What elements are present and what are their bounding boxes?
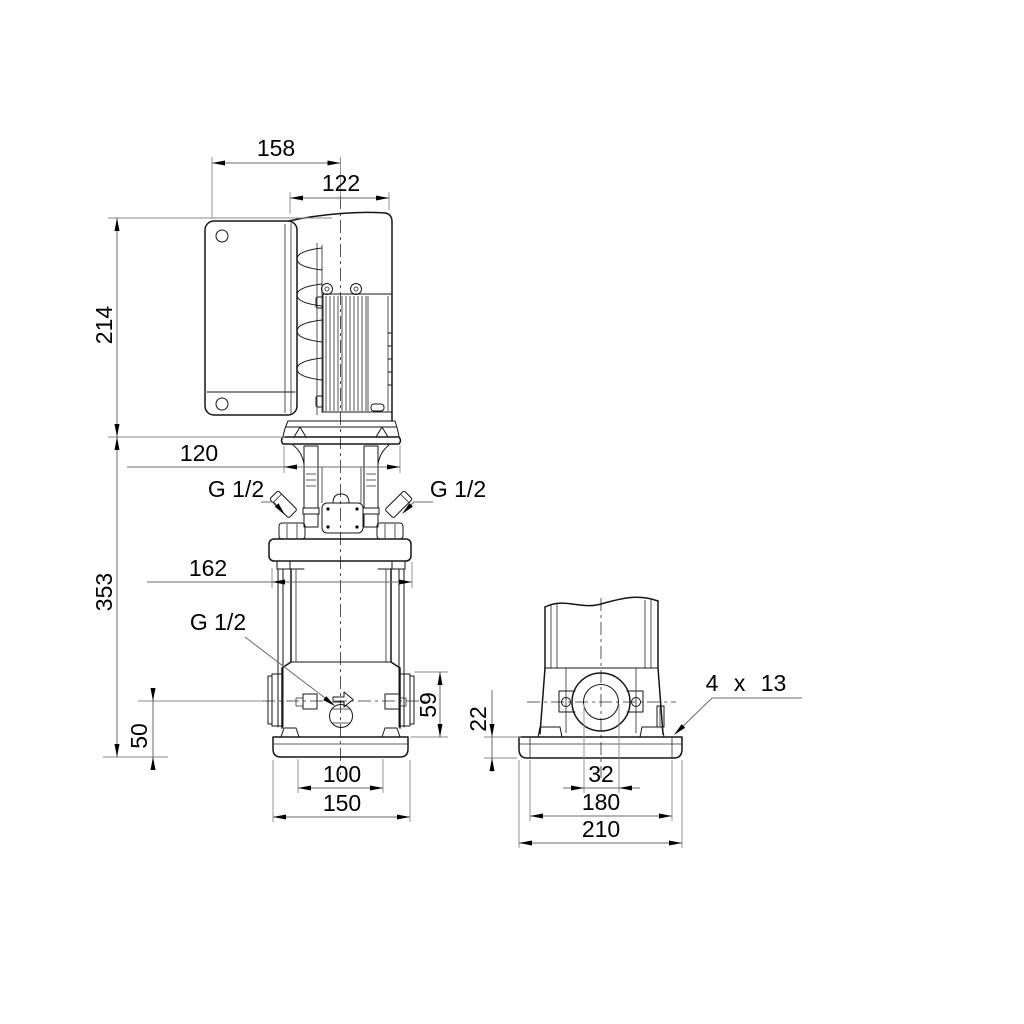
oval-flange: [269, 539, 411, 561]
label-g12-top-left: G 1/2: [208, 476, 264, 502]
fin-panel-edges: [368, 296, 388, 411]
staybolt-nut-left: [303, 508, 319, 514]
base-shoulders: [282, 662, 400, 728]
staybolt-right: [364, 446, 378, 527]
dimensions: 158 122 214 353: [91, 135, 802, 848]
converter-hole-bottom: [216, 398, 228, 410]
fin-end-ticks: [388, 333, 391, 385]
side-sleeve-walls: [545, 601, 658, 668]
grommet-1: [297, 248, 322, 270]
dim-label-100: 100: [323, 761, 361, 787]
sleeve-walls: [291, 569, 391, 662]
side-base-flare: [540, 668, 663, 734]
dim-coupling-width: 120: [127, 440, 400, 473]
gauge-plug-right: [385, 491, 413, 519]
screw-right: [351, 284, 362, 295]
shaft-dome: [333, 494, 349, 503]
dim-label-158: 158: [257, 135, 295, 161]
guard-screw-3: [326, 525, 329, 528]
technical-drawing: 158 122 214 353: [0, 0, 1024, 1024]
label-4x13: 4 x 13: [706, 670, 787, 696]
dim-port-height: 59: [411, 672, 448, 737]
port-left: [268, 674, 282, 726]
dim-label-214: 214: [91, 306, 117, 345]
port-right: [400, 674, 414, 726]
label-drain-port: G 1/2: [190, 609, 335, 706]
boss-left-stem: [296, 698, 303, 706]
break-line: [545, 597, 658, 607]
screw-left: [322, 284, 333, 295]
label-gauge-port-right: G 1/2: [402, 476, 486, 514]
motor: [282, 212, 401, 444]
flange-ring: [282, 437, 401, 444]
dim-motor-diameter: 122: [290, 170, 389, 214]
boss-right: [385, 694, 399, 709]
dim-base-hole-spacing: 100: [298, 759, 383, 793]
drain-plug-flats: [332, 709, 350, 723]
front-view-pump: [205, 157, 414, 775]
dim-pump-width: 162: [147, 555, 412, 588]
boss-left: [303, 694, 317, 709]
baseplate-side: [519, 737, 682, 758]
dim-port-bore: 32: [563, 704, 640, 793]
hex-nut-left: [279, 523, 305, 539]
staybolt-nut-right: [363, 508, 379, 514]
dim-label-50: 50: [126, 723, 152, 749]
guard-screw-4: [355, 525, 358, 528]
base-casting: [268, 662, 414, 757]
dim-pump-height: 353: [91, 437, 168, 757]
sleeve-inner-walls: [296, 569, 386, 662]
converter-hole-top: [216, 230, 228, 242]
label-g12-top-right: G 1/2: [430, 476, 486, 502]
staybolt-threads: [306, 474, 376, 486]
dim-label-120: 120: [180, 440, 218, 466]
label-bolt-holes: 4 x 13: [674, 670, 802, 735]
motor-lower-band: [286, 421, 396, 427]
dim-motor-height: 214: [91, 218, 332, 437]
hex-nut-right-facets: [385, 524, 395, 538]
flange-tab-right: [392, 561, 405, 569]
grommet-2: [297, 284, 322, 306]
converter-box: [205, 221, 297, 415]
head-taper: [293, 445, 389, 470]
dim-label-122: 122: [322, 170, 360, 196]
dim-label-353: 353: [91, 573, 117, 611]
dim-label-22: 22: [465, 706, 491, 732]
guard-screw-2: [355, 507, 358, 510]
head-inner-edges: [322, 467, 361, 503]
screw-right-slot: [354, 287, 358, 291]
drain-vent: [371, 404, 384, 411]
screw-left-slot: [325, 287, 329, 291]
fin-frame: [323, 294, 392, 412]
dim-label-210: 210: [582, 816, 620, 842]
grommet-4: [297, 358, 322, 380]
grommet-3: [297, 320, 322, 342]
dim-label-150: 150: [323, 790, 361, 816]
dim-label-32: 32: [588, 761, 614, 787]
hex-nut-right: [377, 523, 403, 539]
drain-plug: [330, 705, 353, 728]
dim-label-59: 59: [415, 692, 441, 718]
guard-screw-1: [326, 507, 329, 510]
mounting-claws: [294, 427, 388, 437]
motor-left-edge: [317, 243, 322, 415]
dim-label-162: 162: [189, 555, 227, 581]
dim-baseplate-thickness: 22: [465, 690, 521, 772]
skirt-sides: [283, 421, 399, 437]
cooling-fins: [326, 296, 366, 411]
converter-outline: [205, 221, 297, 415]
side-view-base: [519, 597, 682, 778]
flange-tab-left: [277, 561, 290, 569]
dim-label-180: 180: [582, 789, 620, 815]
staybolt-left: [304, 446, 318, 527]
label-g12-drain: G 1/2: [190, 609, 246, 635]
hex-nut-left-facets: [287, 524, 297, 538]
converter-side-face: [285, 223, 291, 414]
gauge-plug-left: [270, 491, 298, 519]
